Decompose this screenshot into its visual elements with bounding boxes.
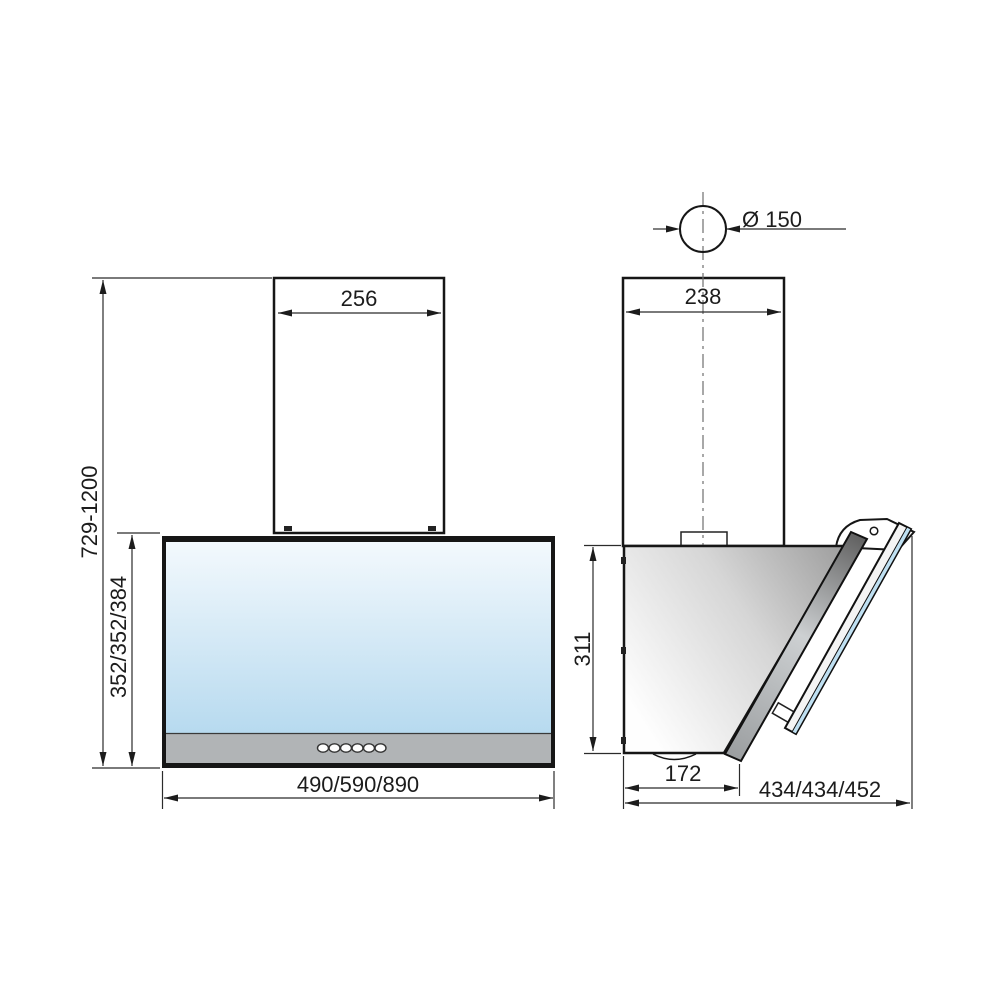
control-button: [329, 744, 340, 752]
dim-side-body-height: 311: [570, 546, 621, 754]
front-glass-panel: [166, 542, 551, 733]
dim-side-bottom-depth: 172: [625, 761, 740, 796]
dim-label-352-352-384: 352/352/384: [106, 576, 131, 698]
dim-label-256: 256: [341, 286, 378, 311]
blower-arc: [653, 754, 696, 760]
mount-nub: [621, 737, 626, 744]
hood-dimension-drawing: 256 490/590/890 729-1200 352/352/384: [0, 0, 1000, 1000]
side-view: Ø 150 238: [570, 192, 914, 809]
dim-label-172: 172: [665, 761, 702, 786]
control-button: [352, 744, 363, 752]
duct-notch: [681, 532, 727, 546]
mount-nub: [621, 647, 626, 654]
front-chimney-tab-right: [428, 526, 436, 531]
dim-label-729-1200: 729-1200: [77, 466, 102, 559]
dim-front-body-width: 490/590/890: [163, 771, 555, 809]
side-body: [624, 546, 845, 753]
dim-label-490-590-890: 490/590/890: [297, 772, 419, 797]
dim-front-chimney-width: 256: [278, 286, 441, 317]
dim-front-body-height: 352/352/384: [106, 533, 160, 766]
dim-label-311: 311: [570, 631, 595, 666]
dim-label-434-434-452: 434/434/452: [759, 777, 881, 802]
mount-nub: [621, 557, 626, 564]
dim-label-238: 238: [685, 284, 722, 309]
dim-label-diameter-150: Ø 150: [742, 207, 802, 232]
front-chimney-tab-left: [284, 526, 292, 531]
front-chimney: [274, 278, 444, 533]
control-button: [341, 744, 352, 752]
control-button: [364, 744, 375, 752]
hinge-pivot: [870, 527, 878, 535]
front-view: 256 490/590/890 729-1200 352/352/384: [77, 278, 555, 809]
control-button: [375, 744, 386, 752]
control-button: [318, 744, 329, 752]
